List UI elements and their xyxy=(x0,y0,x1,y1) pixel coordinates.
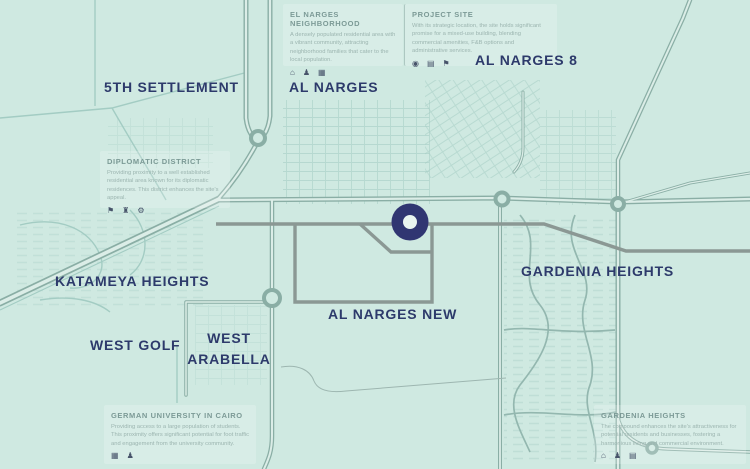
card-title: EL NARGES NEIGHBORHOOD xyxy=(290,10,396,28)
west-arabella-line2: ARABELLA xyxy=(186,349,272,370)
buildings-icon: ▦ xyxy=(318,69,326,77)
card-german-university-in-cairo: GERMAN UNIVERSITY IN CAIRO Providing acc… xyxy=(104,405,256,464)
map-label-al-narges: AL NARGES xyxy=(289,79,378,95)
card-body: Providing access to a large population o… xyxy=(111,423,249,448)
card-body: A densely populated residential area wit… xyxy=(290,31,396,65)
student-icon: ♟ xyxy=(127,452,134,460)
card-icons: ⌂ ♟ ▦ xyxy=(290,69,396,77)
card-diplomatic-district: DIPLOMATIC DISTRICT Providing proximity … xyxy=(100,151,230,208)
card-title: DIPLOMATIC DISTRICT xyxy=(107,157,223,166)
location-map: EL NARGES NEIGHBORHOOD A densely populat… xyxy=(0,0,750,469)
landmark-icon: ♜ xyxy=(122,207,129,215)
home-icon: ⌂ xyxy=(601,452,606,460)
project-site-marker xyxy=(392,204,429,241)
card-icons: ⚑ ♜ ⚙ xyxy=(107,207,223,215)
west-arabella-line1: WEST xyxy=(186,328,272,349)
card-title: PROJECT SITE xyxy=(412,10,550,19)
card-body: Providing proximity to a well establishe… xyxy=(107,169,223,203)
university-building-icon: ▦ xyxy=(111,452,119,460)
map-label-al-narges-new: AL NARGES NEW xyxy=(328,306,457,322)
community-icon: ♟ xyxy=(303,69,310,77)
card-icons: ▦ ♟ xyxy=(111,452,249,460)
map-label-katameya-heights: KATAMEYA HEIGHTS xyxy=(55,273,209,289)
map-label-5th-settlement: 5TH SETTLEMENT xyxy=(104,79,239,95)
card-gardenia-heights: GARDENIA HEIGHTS The compound enhances t… xyxy=(594,405,746,464)
community-icon: ♟ xyxy=(614,452,621,460)
card-icons: ⌂ ♟ ▤ xyxy=(601,452,739,460)
card-el-narges-neighborhood: EL NARGES NEIGHBORHOOD A densely populat… xyxy=(283,4,403,66)
location-icon: ◉ xyxy=(412,60,419,68)
map-label-west-arabella: WEST ARABELLA xyxy=(186,328,272,370)
car-icon: ⚙ xyxy=(137,207,144,215)
card-title: GERMAN UNIVERSITY IN CAIRO xyxy=(111,411,249,420)
card-body: With its strategic location, the site ho… xyxy=(412,22,550,56)
boundary-line xyxy=(281,366,506,391)
card-title: GARDENIA HEIGHTS xyxy=(601,411,739,420)
map-label-west-golf: WEST GOLF xyxy=(90,337,180,353)
services-icon: ⚑ xyxy=(443,60,450,68)
map-label-gardenia-heights: GARDENIA HEIGHTS xyxy=(521,263,674,279)
home-icon: ⌂ xyxy=(290,69,295,77)
flag-icon: ⚑ xyxy=(107,207,114,215)
building-icon: ▤ xyxy=(629,452,637,460)
storefront-icon: ▤ xyxy=(427,60,435,68)
card-body: The compound enhances the site's attract… xyxy=(601,423,739,448)
map-label-al-narges-8: AL NARGES 8 xyxy=(475,52,578,68)
